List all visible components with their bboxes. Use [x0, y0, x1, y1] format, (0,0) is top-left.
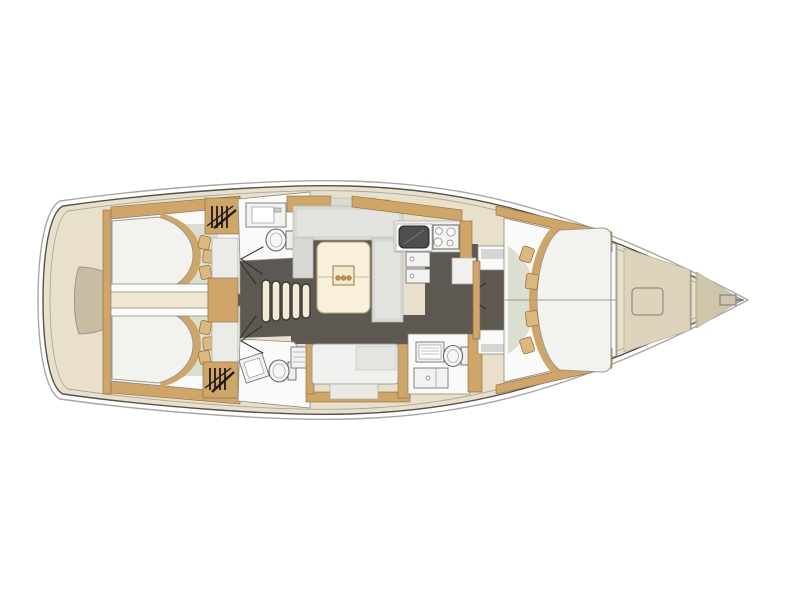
companionway-steps — [262, 280, 310, 322]
foredeck — [617, 244, 744, 356]
anchor-locker — [697, 272, 741, 328]
door-frame — [473, 261, 480, 339]
step — [302, 284, 310, 318]
entry-cabinet-top — [481, 249, 505, 259]
galley-counter-fwd — [452, 258, 476, 284]
step — [262, 280, 270, 322]
cabinet-with-basin — [414, 368, 448, 388]
tap-icon — [274, 208, 281, 212]
shower-seat — [291, 347, 307, 368]
toilet-icon — [266, 229, 295, 251]
hanging-locker-port — [205, 198, 240, 234]
backrest — [356, 346, 396, 370]
pillow — [199, 320, 212, 335]
pillow — [525, 273, 539, 289]
settee-left — [293, 238, 313, 278]
pillow — [525, 310, 539, 326]
foredeck-panel — [624, 248, 690, 352]
entry-cabinet-top — [481, 344, 505, 352]
cup-icon — [336, 276, 341, 281]
cup-icon — [347, 276, 352, 281]
fridge-drawer — [406, 269, 430, 283]
forward-head — [408, 334, 482, 394]
stove-icon — [433, 225, 459, 249]
settee-starboard — [306, 344, 410, 402]
center-beam — [111, 292, 208, 308]
double-berth — [112, 308, 193, 383]
footstool — [330, 384, 378, 399]
pillow — [198, 235, 211, 250]
step — [292, 283, 300, 319]
settee-cushion — [297, 210, 399, 236]
washbasin-icon — [252, 207, 274, 223]
settee-cushion — [375, 242, 400, 318]
toilet-icon — [444, 346, 470, 367]
step — [272, 281, 280, 321]
cup-icon — [341, 276, 346, 281]
fridge-drawer — [406, 252, 430, 267]
vanity — [416, 342, 444, 362]
aft-section — [103, 196, 240, 404]
aft-bulkhead — [103, 210, 111, 394]
engine-box — [208, 278, 238, 322]
salon-table — [317, 242, 370, 313]
double-berth — [112, 217, 193, 292]
step — [282, 282, 290, 320]
pillow — [199, 265, 212, 280]
yacht-floor-plan — [0, 0, 800, 600]
hanging-locker-starboard — [203, 362, 238, 398]
